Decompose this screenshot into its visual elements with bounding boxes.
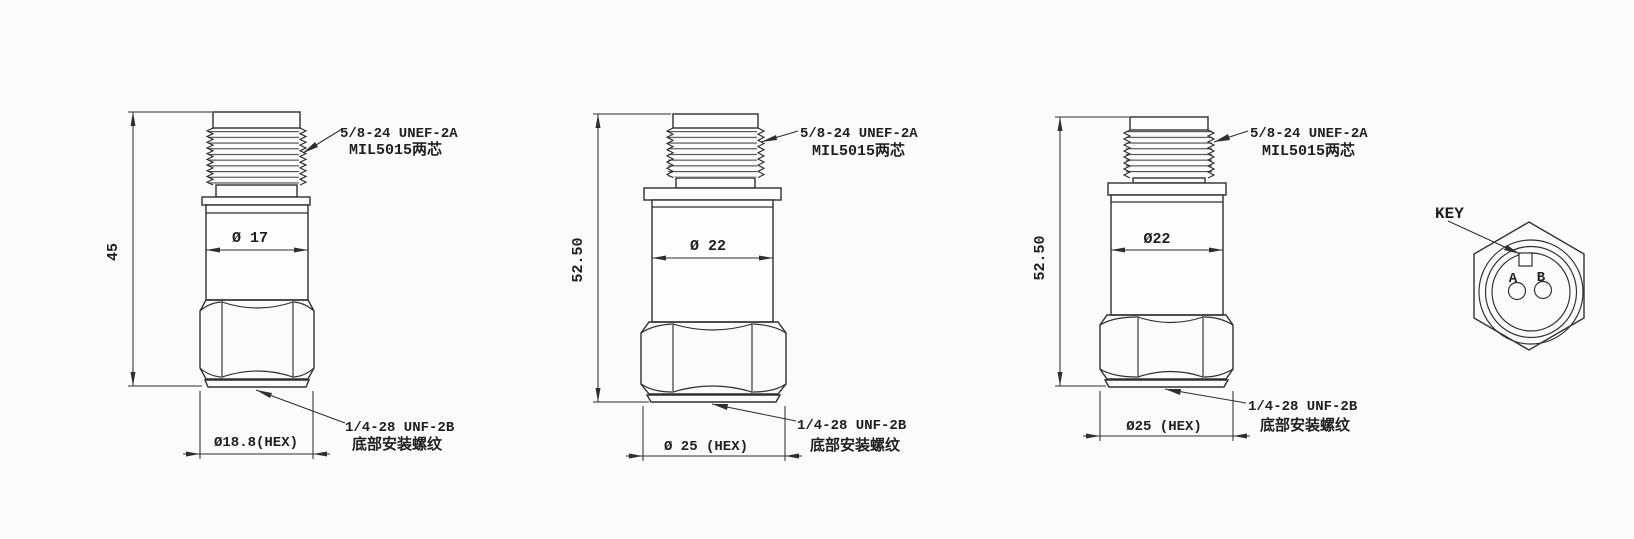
connector-collar <box>216 185 297 197</box>
flange <box>644 188 781 200</box>
leader-arrowhead <box>1165 389 1181 395</box>
hex-nut-outline <box>641 322 786 394</box>
hex-dimension-text: Ø25 (HEX) <box>1126 419 1202 435</box>
thread-hatch <box>208 129 299 184</box>
body <box>652 200 773 322</box>
body-diameter-text: Ø22 <box>1143 231 1170 248</box>
body-diameter-text: Ø 22 <box>690 238 726 255</box>
pin-b-label: B <box>1537 270 1546 286</box>
connector-cap <box>673 114 758 128</box>
hex-nut-outline <box>1100 315 1233 379</box>
key-label: KEY <box>1435 205 1464 223</box>
body <box>1111 195 1223 315</box>
body-diameter-text: Ø 17 <box>232 230 268 247</box>
sensor-view-2: 52.50 Ø 22 Ø 25 (HEX) 5/8-24 UNEF-2A MIL… <box>570 114 918 461</box>
flange <box>202 197 310 205</box>
height-dimension-text: 45 <box>105 243 122 261</box>
connector-top-view: A B KEY <box>1435 205 1584 350</box>
height-dimension-text: 52.50 <box>1032 235 1049 280</box>
hex-dimension-text: Ø18.8(HEX) <box>214 435 298 451</box>
mount-thread-label: 1/4-28 UNF-2B <box>797 418 907 434</box>
connector-thread-label: 5/8-24 UNEF-2A <box>1250 126 1368 142</box>
body <box>206 205 308 300</box>
mount-thread-label: 1/4-28 UNF-2B <box>1248 399 1358 415</box>
pin-a-label: A <box>1509 271 1518 287</box>
connector-type-label: MIL5015两芯 <box>1262 141 1355 160</box>
thread-hatch <box>668 129 757 177</box>
hex-chamfer-arc <box>222 371 293 377</box>
leader-arrowhead <box>1504 245 1520 254</box>
connector-cap <box>1130 117 1208 130</box>
washer-face <box>1105 380 1228 387</box>
connector-type-label: MIL5015两芯 <box>812 141 905 160</box>
sensor-view-3: 52.50 Ø22 Ø25 (HEX) 5/8-24 UNEF-2A MIL50… <box>1032 117 1368 441</box>
technical-drawing-canvas: 45 Ø 17 Ø18.8(HEX) 5/8-24 UNEF-2A MIL501… <box>0 0 1634 539</box>
hex-chamfer-arc <box>673 386 752 392</box>
key-notch <box>1519 253 1532 266</box>
washer-face <box>205 380 309 387</box>
connector-collar <box>676 178 755 188</box>
connector-type-label: MIL5015两芯 <box>349 140 442 159</box>
hex-chamfer-arc <box>222 302 293 308</box>
mount-thread-label: 1/4-28 UNF-2B <box>345 420 455 436</box>
connector-cap <box>213 112 300 128</box>
hex-chamfer-arc <box>1138 372 1203 378</box>
leader-arrowhead <box>761 135 777 142</box>
engineering-drawing-sheet: 45 Ø 17 Ø18.8(HEX) 5/8-24 UNEF-2A MIL501… <box>0 0 1634 539</box>
mount-thread-note: 底部安装螺纹 <box>810 436 901 455</box>
connector-collar <box>1133 178 1205 183</box>
leader-arrowhead <box>1214 134 1230 142</box>
thread-hatch <box>1126 131 1212 176</box>
mount-thread-note: 底部安装螺纹 <box>1260 416 1351 435</box>
height-dimension-text: 52.50 <box>570 237 587 282</box>
hex-chamfer-arc <box>673 324 752 330</box>
thread-right-edge <box>758 128 764 178</box>
hex-chamfer-arc <box>1138 317 1203 323</box>
hex-chamfer-arc <box>641 324 672 333</box>
leader-arrowhead <box>256 390 272 398</box>
connector-thread-label: 5/8-24 UNEF-2A <box>340 126 458 142</box>
thread-right-edge <box>300 128 306 185</box>
hex-dimension-text: Ø 25 (HEX) <box>664 439 748 455</box>
connector-thread-label: 5/8-24 UNEF-2A <box>800 126 918 142</box>
sensor-view-1: 45 Ø 17 Ø18.8(HEX) 5/8-24 UNEF-2A MIL501… <box>105 112 458 459</box>
washer-face <box>647 395 780 402</box>
mount-thread-note: 底部安装螺纹 <box>352 435 443 454</box>
leader-arrowhead <box>712 404 728 410</box>
flange <box>1108 183 1226 195</box>
hex-nut-outline <box>200 300 314 379</box>
